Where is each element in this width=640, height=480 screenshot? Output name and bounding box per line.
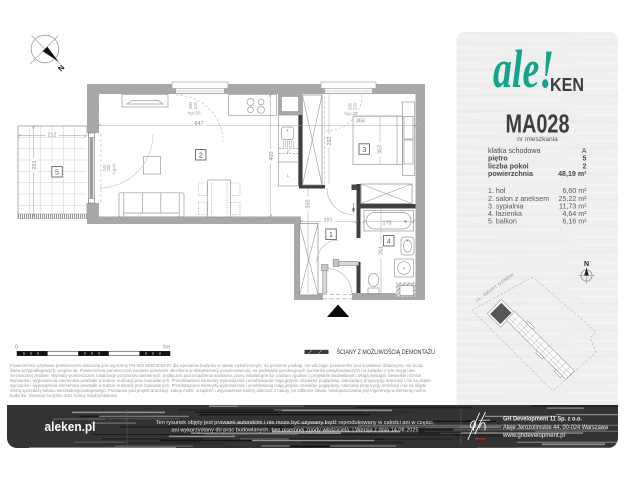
svg-text:212: 212 — [48, 133, 57, 139]
svg-text:L: L — [287, 173, 290, 178]
svg-text:Aleje Jerozolimskie 44, 00-024: Aleje Jerozolimskie 44, 00-024 Warszawa — [503, 424, 609, 431]
svg-text:350: 350 — [306, 200, 312, 209]
svg-text:260: 260 — [106, 164, 111, 172]
svg-text:647: 647 — [195, 121, 204, 127]
svg-text:175: 175 — [383, 221, 392, 227]
svg-text:hg=20: hg=20 — [345, 111, 358, 116]
svg-text:ale!: ale! — [493, 39, 554, 99]
svg-text:5: 5 — [55, 170, 59, 177]
svg-text:4: 4 — [387, 239, 391, 246]
svg-text:www.ghdevelopment.pl: www.ghdevelopment.pl — [502, 432, 565, 439]
svg-text:191: 191 — [324, 218, 333, 224]
svg-text:P: P — [403, 266, 406, 271]
svg-text:powierzchnia: powierzchnia — [488, 170, 533, 178]
svg-text:6,16 m²: 6,16 m² — [562, 218, 587, 226]
svg-text:hg=20: hg=20 — [188, 111, 201, 116]
svg-text:KEN: KEN — [550, 74, 584, 95]
svg-text:hg=0: hg=0 — [112, 163, 117, 174]
svg-text:48,19 m²: 48,19 m² — [558, 170, 587, 178]
svg-text:220: 220 — [193, 101, 198, 109]
svg-text:ŚCIANY Z MOŻLIWOŚCIĄ DEMONTAŻU: ŚCIANY Z MOŻLIWOŚCIĄ DEMONTAŻU — [337, 348, 436, 356]
svg-text:aleken.pl: aleken.pl — [45, 420, 96, 434]
svg-text:3: 3 — [362, 147, 366, 154]
svg-text:GH Development 11 Sp. z o.o.: GH Development 11 Sp. z o.o. — [503, 415, 582, 422]
svg-text:Z: Z — [287, 149, 290, 154]
svg-text:1: 1 — [329, 232, 333, 239]
svg-text:nr mieszkania: nr mieszkania — [517, 136, 558, 143]
svg-text:ani wykorzystany do prac budow: ani wykorzystany do prac budowlanych, be… — [171, 427, 418, 433]
svg-text:2: 2 — [199, 153, 203, 160]
svg-text:357: 357 — [378, 145, 384, 154]
svg-text:5m: 5m — [163, 345, 170, 351]
svg-text:220: 220 — [352, 102, 357, 110]
svg-text:261: 261 — [379, 246, 385, 255]
svg-text:0: 0 — [15, 345, 18, 351]
svg-text:251: 251 — [32, 161, 38, 170]
svg-text:5. balkon: 5. balkon — [488, 218, 517, 226]
svg-text:366: 366 — [356, 119, 365, 125]
svg-text:292: 292 — [327, 137, 333, 146]
svg-text:400: 400 — [269, 152, 275, 161]
svg-text:N: N — [584, 261, 589, 268]
svg-text:Ten rysunek objęty jest prawam: Ten rysunek objęty jest prawami autorski… — [156, 420, 435, 426]
svg-text:MA028: MA028 — [506, 109, 570, 139]
svg-text:budynku, elewację budynku oraz: budynku, elewację budynku oraz ściany mi… — [10, 393, 118, 398]
